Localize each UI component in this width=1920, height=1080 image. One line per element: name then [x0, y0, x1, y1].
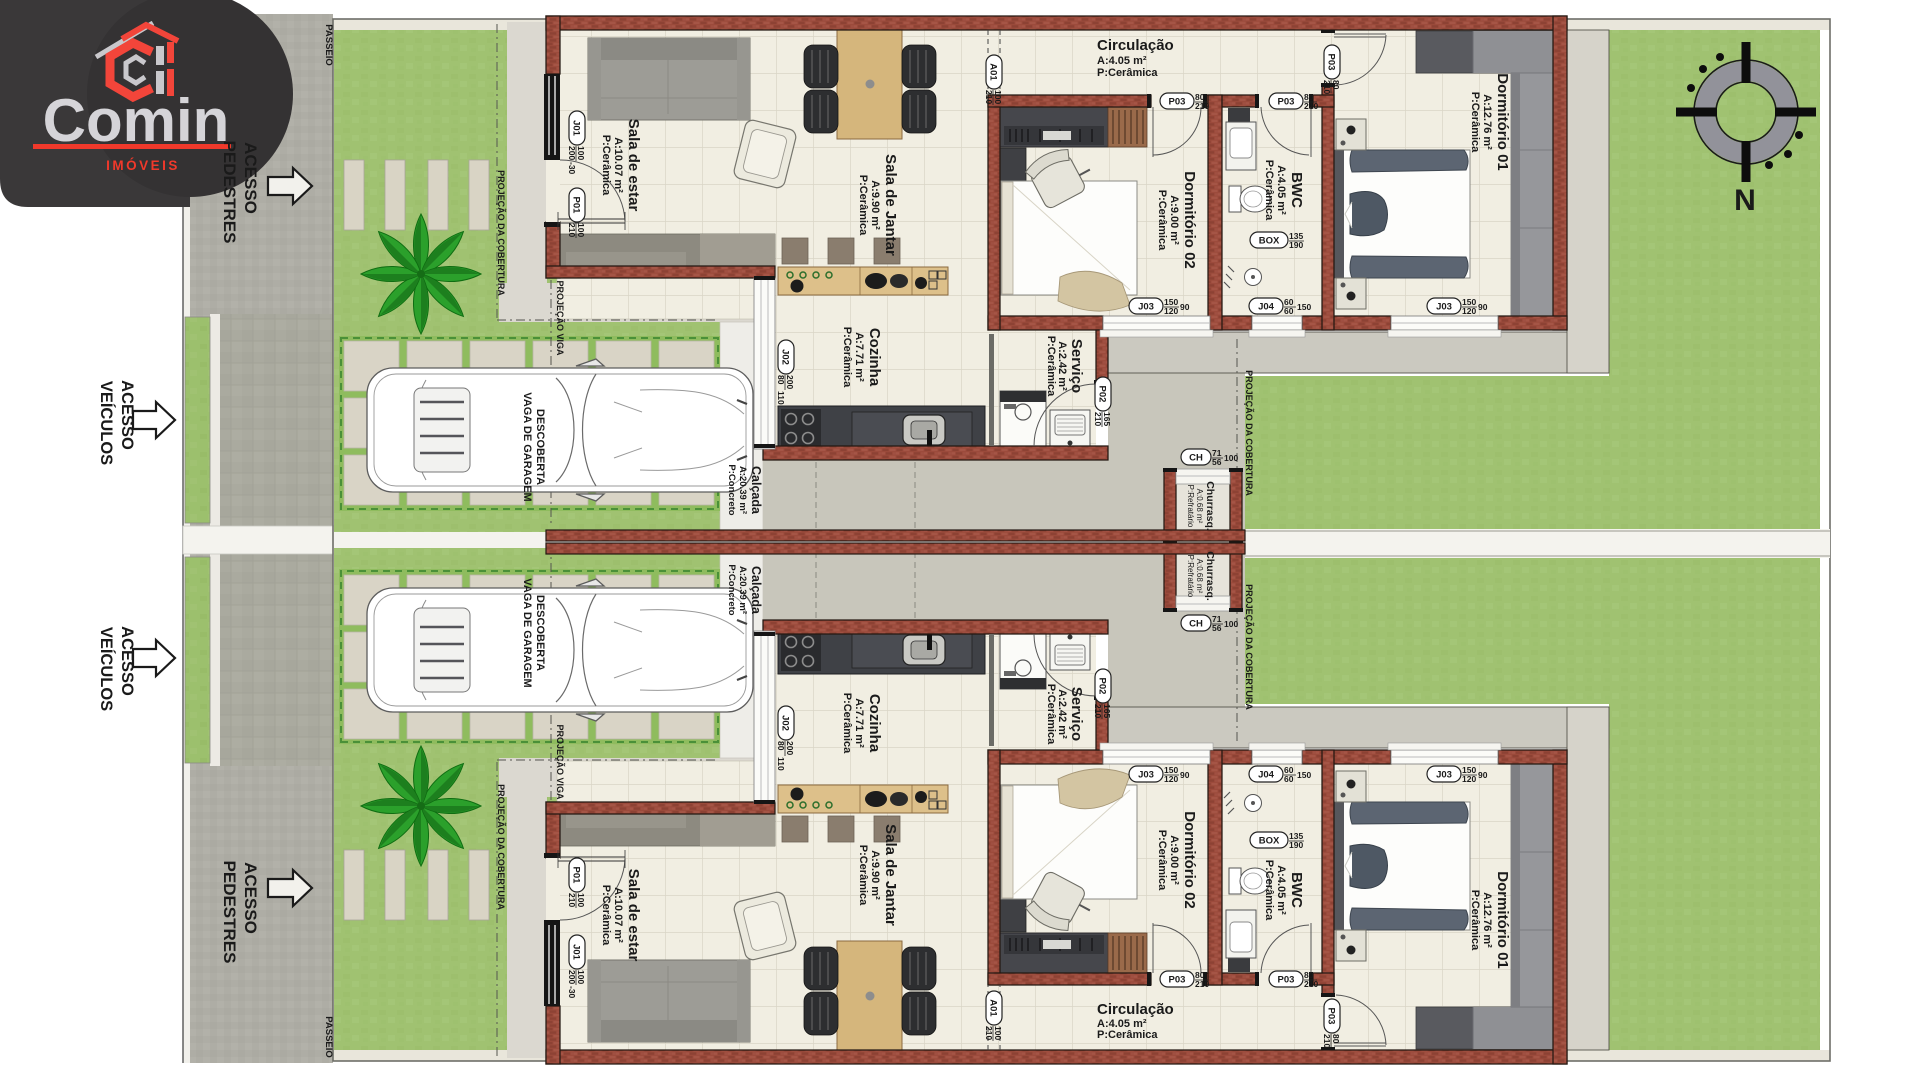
svg-text:56: 56	[1212, 457, 1222, 467]
svg-text:A:9.90 m²: A:9.90 m²	[869, 180, 881, 230]
svg-text:Serviço: Serviço	[1068, 339, 1085, 393]
svg-text:A:4.05 m²: A:4.05 m²	[1275, 865, 1287, 915]
svg-text:A:9.90 m²: A:9.90 m²	[869, 850, 881, 900]
svg-text:Churrasq.: Churrasq.	[1204, 481, 1216, 531]
svg-text:210: 210	[1093, 412, 1103, 426]
svg-text:90: 90	[1180, 302, 1190, 312]
svg-text:PROJEÇÃO VIGA: PROJEÇÃO VIGA	[555, 724, 565, 800]
svg-text:Sala de Jantar: Sala de Jantar	[882, 154, 899, 256]
svg-text:BWC: BWC	[1288, 872, 1305, 908]
svg-text:PROJEÇÃO DA COBERTURA: PROJEÇÃO DA COBERTURA	[1244, 370, 1254, 496]
svg-text:200: 200	[567, 146, 577, 160]
svg-text:A:20.39 m²: A:20.39 m²	[737, 566, 748, 614]
svg-text:A:9.00 m²: A:9.00 m²	[1168, 835, 1180, 885]
svg-text:A:12.76 m²: A:12.76 m²	[1481, 94, 1493, 150]
svg-text:P03: P03	[1278, 97, 1295, 108]
svg-text:Cozinha: Cozinha	[866, 328, 883, 387]
svg-text:A:4.05 m²: A:4.05 m²	[1275, 165, 1287, 215]
svg-text:A:7.71 m²: A:7.71 m²	[853, 698, 865, 748]
svg-text:P:Cerâmica: P:Cerâmica	[1097, 1029, 1158, 1041]
svg-text:Dormitório 02: Dormitório 02	[1181, 811, 1198, 909]
svg-text:P:Cerâmica: P:Cerâmica	[1045, 684, 1057, 745]
svg-text:P:Cerâmica: P:Cerâmica	[841, 693, 853, 754]
svg-text:PROJEÇÃO DA COBERTURA: PROJEÇÃO DA COBERTURA	[496, 784, 506, 910]
svg-text:P:Cerâmica: P:Cerâmica	[1469, 890, 1481, 951]
svg-text:P:Concreto: P:Concreto	[726, 564, 737, 615]
svg-text:P:Cerâmica: P:Cerâmica	[1097, 67, 1158, 79]
svg-text:Dormitório 01: Dormitório 01	[1494, 73, 1511, 171]
svg-text:BWC: BWC	[1288, 172, 1305, 208]
svg-text:J03: J03	[1436, 302, 1452, 313]
svg-text:Dormitório 01: Dormitório 01	[1494, 871, 1511, 969]
svg-text:Circulação: Circulação	[1097, 37, 1174, 54]
svg-text:PROJEÇÃO DA COBERTURA: PROJEÇÃO DA COBERTURA	[1244, 584, 1254, 710]
svg-text:90: 90	[1478, 302, 1488, 312]
svg-text:P01: P01	[571, 197, 582, 215]
svg-text:CH: CH	[1189, 453, 1203, 464]
svg-text:PASSEIO: PASSEIO	[323, 1016, 334, 1058]
svg-text:J04: J04	[1258, 302, 1275, 313]
svg-text:100: 100	[1224, 453, 1238, 463]
svg-text:120: 120	[1462, 306, 1476, 316]
svg-text:A:10.07 m²: A:10.07 m²	[612, 137, 624, 193]
svg-text:110: 110	[776, 391, 786, 405]
svg-text:J01: J01	[571, 120, 582, 137]
svg-text:210: 210	[1195, 101, 1209, 111]
svg-text:Cozinha: Cozinha	[866, 694, 883, 753]
svg-text:VAGA DE GARAGEM: VAGA DE GARAGEM	[521, 392, 533, 501]
svg-text:PASSEIO: PASSEIO	[323, 24, 334, 66]
svg-text:VEÍCULOS: VEÍCULOS	[97, 627, 116, 711]
svg-text:210: 210	[1304, 101, 1318, 111]
svg-text:Serviço: Serviço	[1068, 687, 1085, 741]
svg-text:A:9.00 m²: A:9.00 m²	[1168, 195, 1180, 245]
svg-text:BOX: BOX	[1259, 236, 1280, 247]
svg-text:A:4.05 m²: A:4.05 m²	[1097, 55, 1147, 67]
svg-text:P:Cerâmica: P:Cerâmica	[841, 327, 853, 388]
svg-text:P03: P03	[1326, 54, 1337, 71]
svg-text:Dormitório 02: Dormitório 02	[1181, 171, 1198, 269]
svg-text:P:Cerâmica: P:Cerâmica	[1156, 190, 1168, 251]
svg-text:P:Cerâmica: P:Cerâmica	[1263, 160, 1275, 221]
svg-text:Calçada: Calçada	[749, 566, 763, 615]
svg-text:A:12.76 m²: A:12.76 m²	[1481, 892, 1493, 948]
svg-text:P:Cerâmica: P:Cerâmica	[1045, 336, 1057, 397]
svg-text:Comin: Comin	[43, 87, 230, 154]
svg-text:A:10.07 m²: A:10.07 m²	[612, 887, 624, 943]
svg-text:210: 210	[567, 223, 577, 237]
svg-text:190: 190	[1289, 240, 1303, 250]
svg-text:A:0.68 m²: A:0.68 m²	[1195, 559, 1204, 594]
svg-text:210: 210	[1322, 80, 1332, 94]
svg-text:P:Cerâmica: P:Cerâmica	[1469, 92, 1481, 153]
svg-text:A:7.71 m²: A:7.71 m²	[853, 332, 865, 382]
svg-text:VAGA DE GARAGEM: VAGA DE GARAGEM	[521, 578, 533, 687]
svg-text:150: 150	[1297, 302, 1311, 312]
svg-text:PROJEÇÃO VIGA: PROJEÇÃO VIGA	[555, 280, 565, 356]
svg-text:P02: P02	[1097, 386, 1108, 403]
svg-text:Calçada: Calçada	[749, 466, 763, 515]
svg-text:Churrasq.: Churrasq.	[1204, 551, 1216, 601]
svg-text:P:Cerâmica: P:Cerâmica	[600, 135, 612, 196]
svg-text:Sala de estar: Sala de estar	[625, 119, 642, 212]
svg-text:DESCOBERTA: DESCOBERTA	[534, 409, 546, 485]
svg-text:P:Concreto: P:Concreto	[726, 464, 737, 515]
svg-text:ACESSO: ACESSO	[241, 142, 260, 214]
svg-text:Circulação: Circulação	[1097, 1001, 1174, 1018]
svg-text:P:Cerâmica: P:Cerâmica	[857, 845, 869, 906]
svg-text:PEDESTRES: PEDESTRES	[220, 861, 239, 964]
svg-text:P:Refratário: P:Refratário	[1186, 555, 1195, 598]
svg-text:N: N	[1734, 184, 1756, 217]
svg-text:P03: P03	[1169, 97, 1186, 108]
svg-text:A01: A01	[988, 63, 999, 81]
svg-text:A:20.39 m²: A:20.39 m²	[737, 466, 748, 514]
svg-text:120: 120	[1164, 306, 1178, 316]
svg-text:J03: J03	[1138, 302, 1154, 313]
svg-text:PEDESTRES: PEDESTRES	[220, 141, 239, 244]
svg-text:PROJEÇÃO DA COBERTURA: PROJEÇÃO DA COBERTURA	[496, 170, 506, 296]
svg-text:210: 210	[984, 90, 994, 104]
svg-text:DESCOBERTA: DESCOBERTA	[534, 595, 546, 671]
svg-text:-30: -30	[567, 162, 577, 175]
svg-text:60: 60	[1284, 306, 1294, 316]
svg-text:J02: J02	[780, 349, 791, 365]
svg-text:P:Cerâmica: P:Cerâmica	[1156, 830, 1168, 891]
svg-text:A:0.68 m²: A:0.68 m²	[1195, 489, 1204, 524]
svg-text:ACESSO: ACESSO	[241, 862, 260, 934]
svg-text:P:Cerâmica: P:Cerâmica	[600, 885, 612, 946]
svg-text:80: 80	[776, 375, 786, 385]
svg-text:Sala de Jantar: Sala de Jantar	[882, 824, 899, 926]
svg-text:IMÓVEIS: IMÓVEIS	[106, 158, 180, 173]
svg-text:VEÍCULOS: VEÍCULOS	[97, 381, 116, 465]
svg-text:P:Refratário: P:Refratário	[1186, 485, 1195, 528]
svg-text:Sala de estar: Sala de estar	[625, 869, 642, 962]
svg-text:P:Cerâmica: P:Cerâmica	[857, 175, 869, 236]
svg-text:P:Cerâmica: P:Cerâmica	[1263, 860, 1275, 921]
